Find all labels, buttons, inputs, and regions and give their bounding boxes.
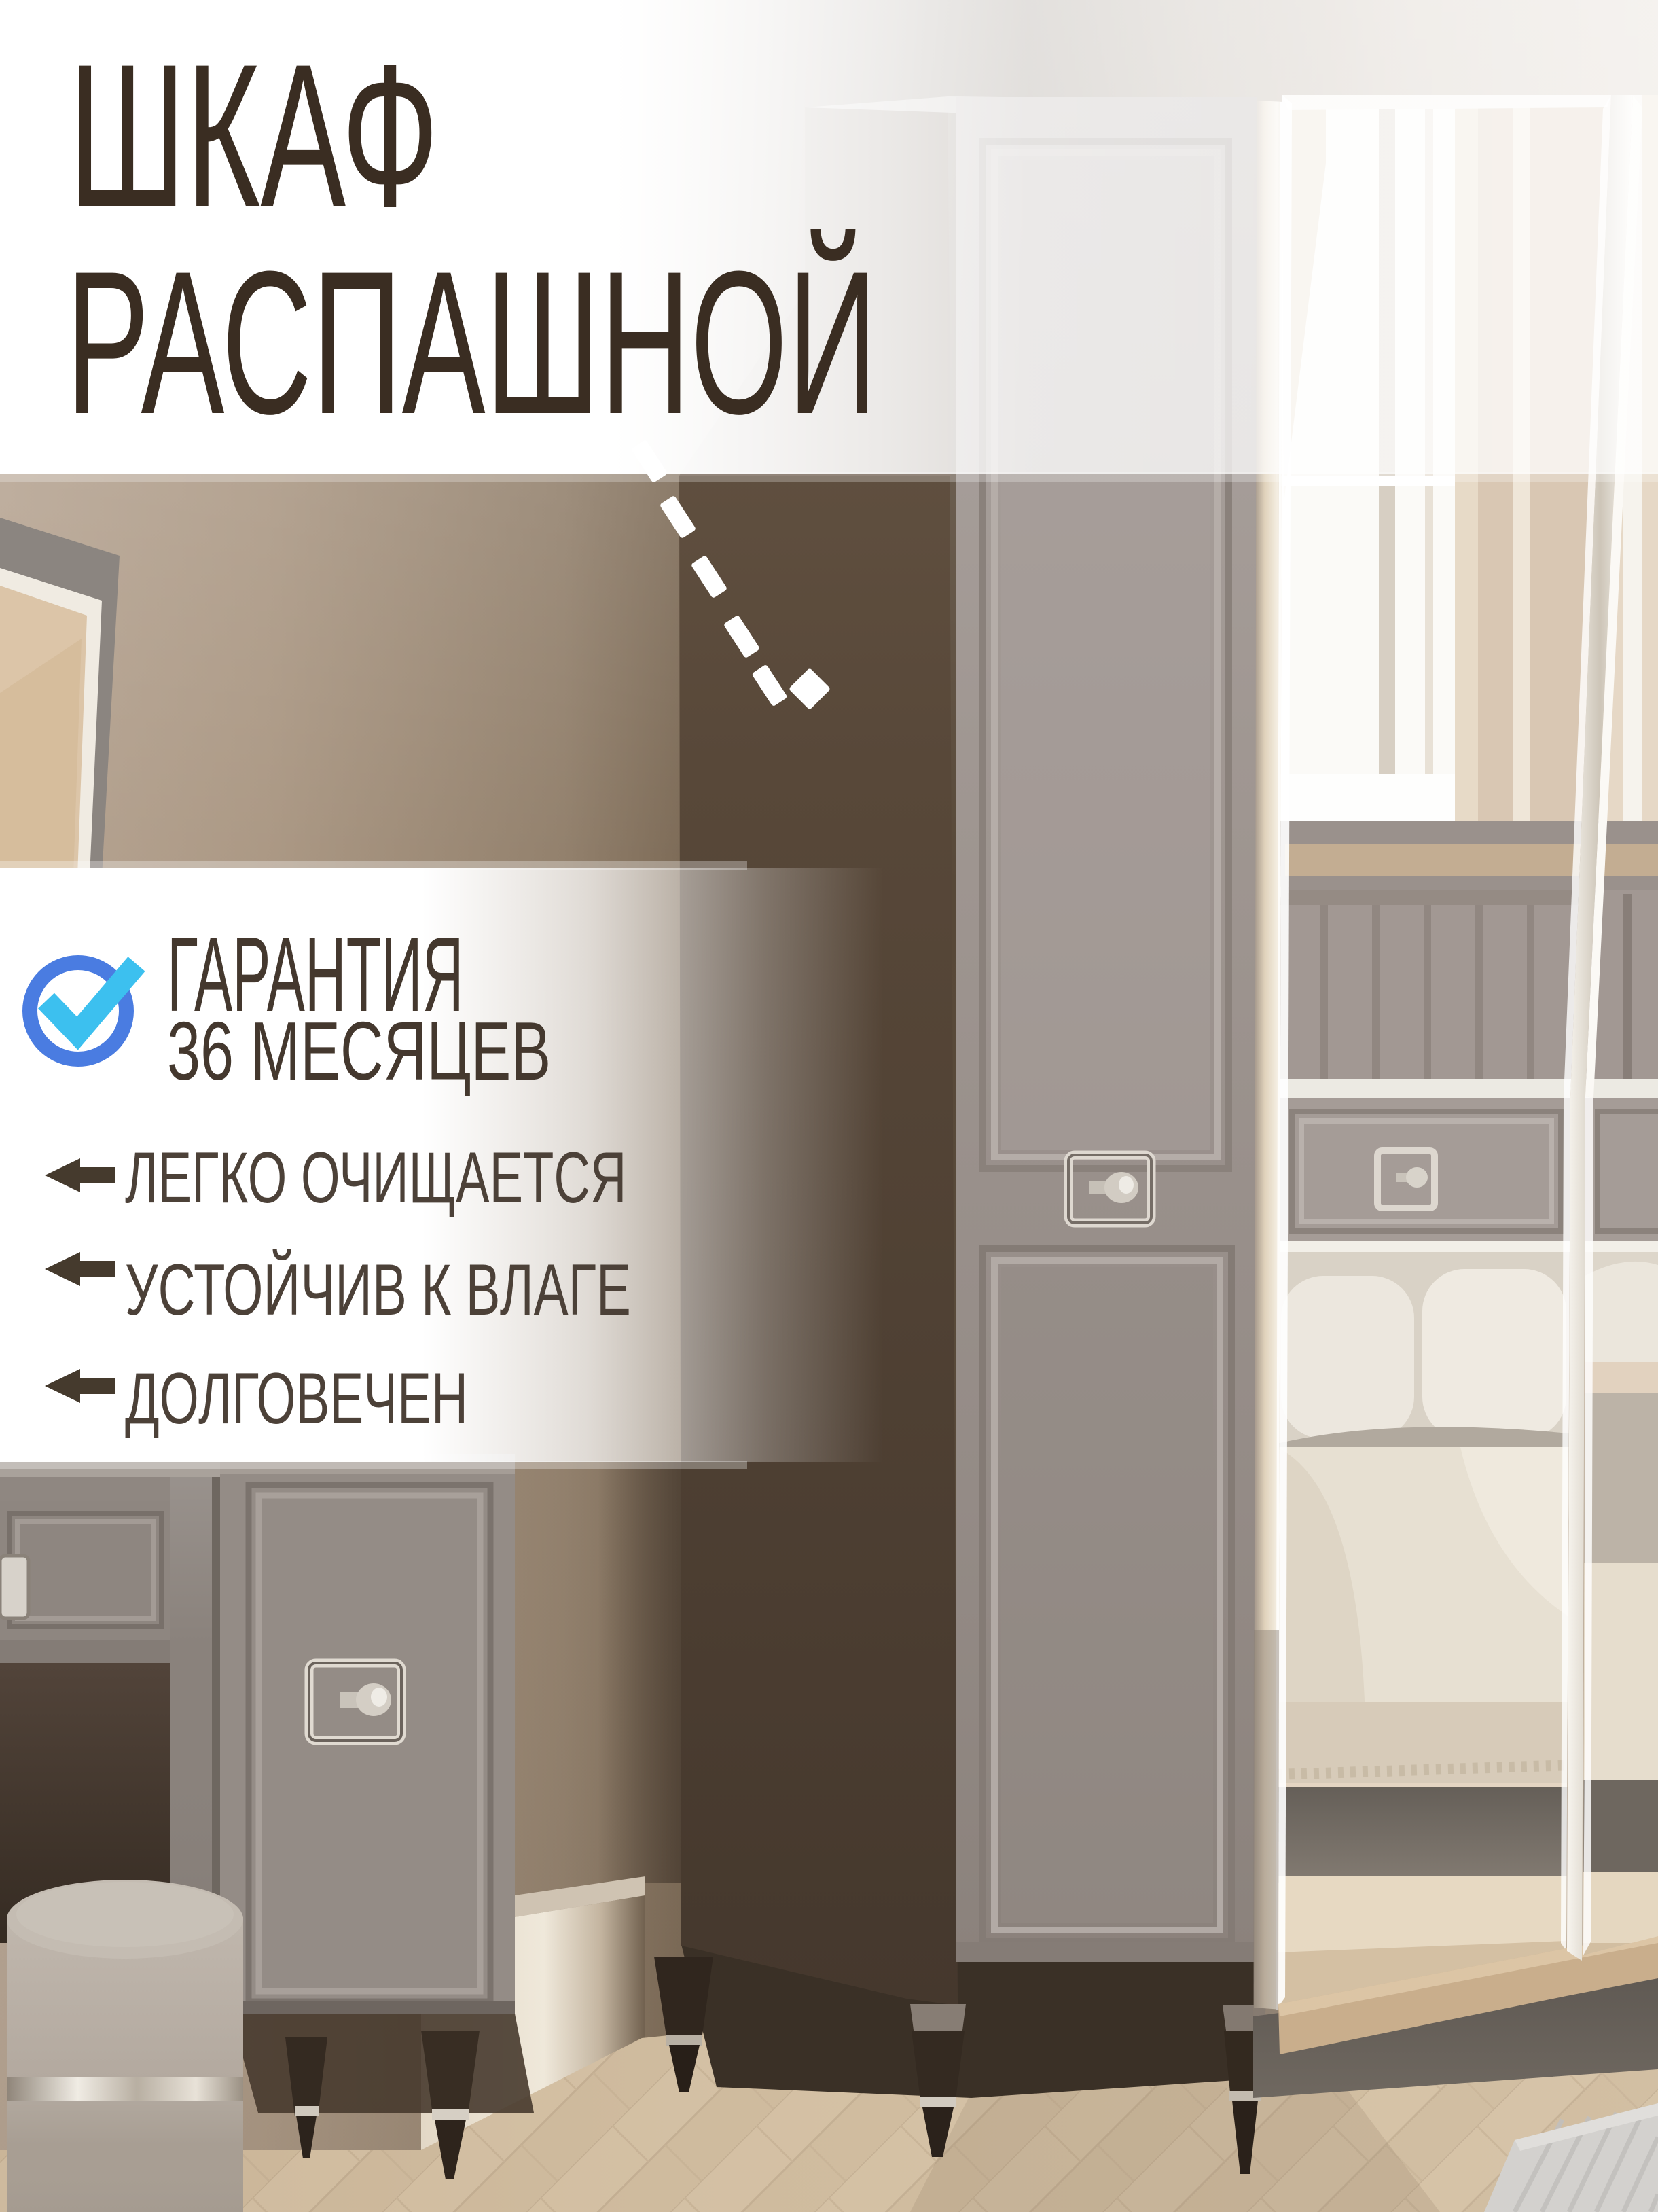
svg-text:36 МЕСЯЦЕВ: 36 МЕСЯЦЕВ <box>167 1005 551 1097</box>
svg-text:УСТОЙЧИВ К ВЛАГЕ: УСТОЙЧИВ К ВЛАГЕ <box>125 1249 631 1330</box>
svg-text:РАСПАШНОЙ: РАСПАШНОЙ <box>66 229 878 457</box>
svg-text:ШКАФ: ШКАФ <box>69 22 439 249</box>
svg-text:ЛЕГКО ОЧИЩАЕТСЯ: ЛЕГКО ОЧИЩАЕТСЯ <box>125 1137 626 1219</box>
svg-text:ДОЛГОВЕЧЕН: ДОЛГОВЕЧЕН <box>125 1357 468 1440</box>
